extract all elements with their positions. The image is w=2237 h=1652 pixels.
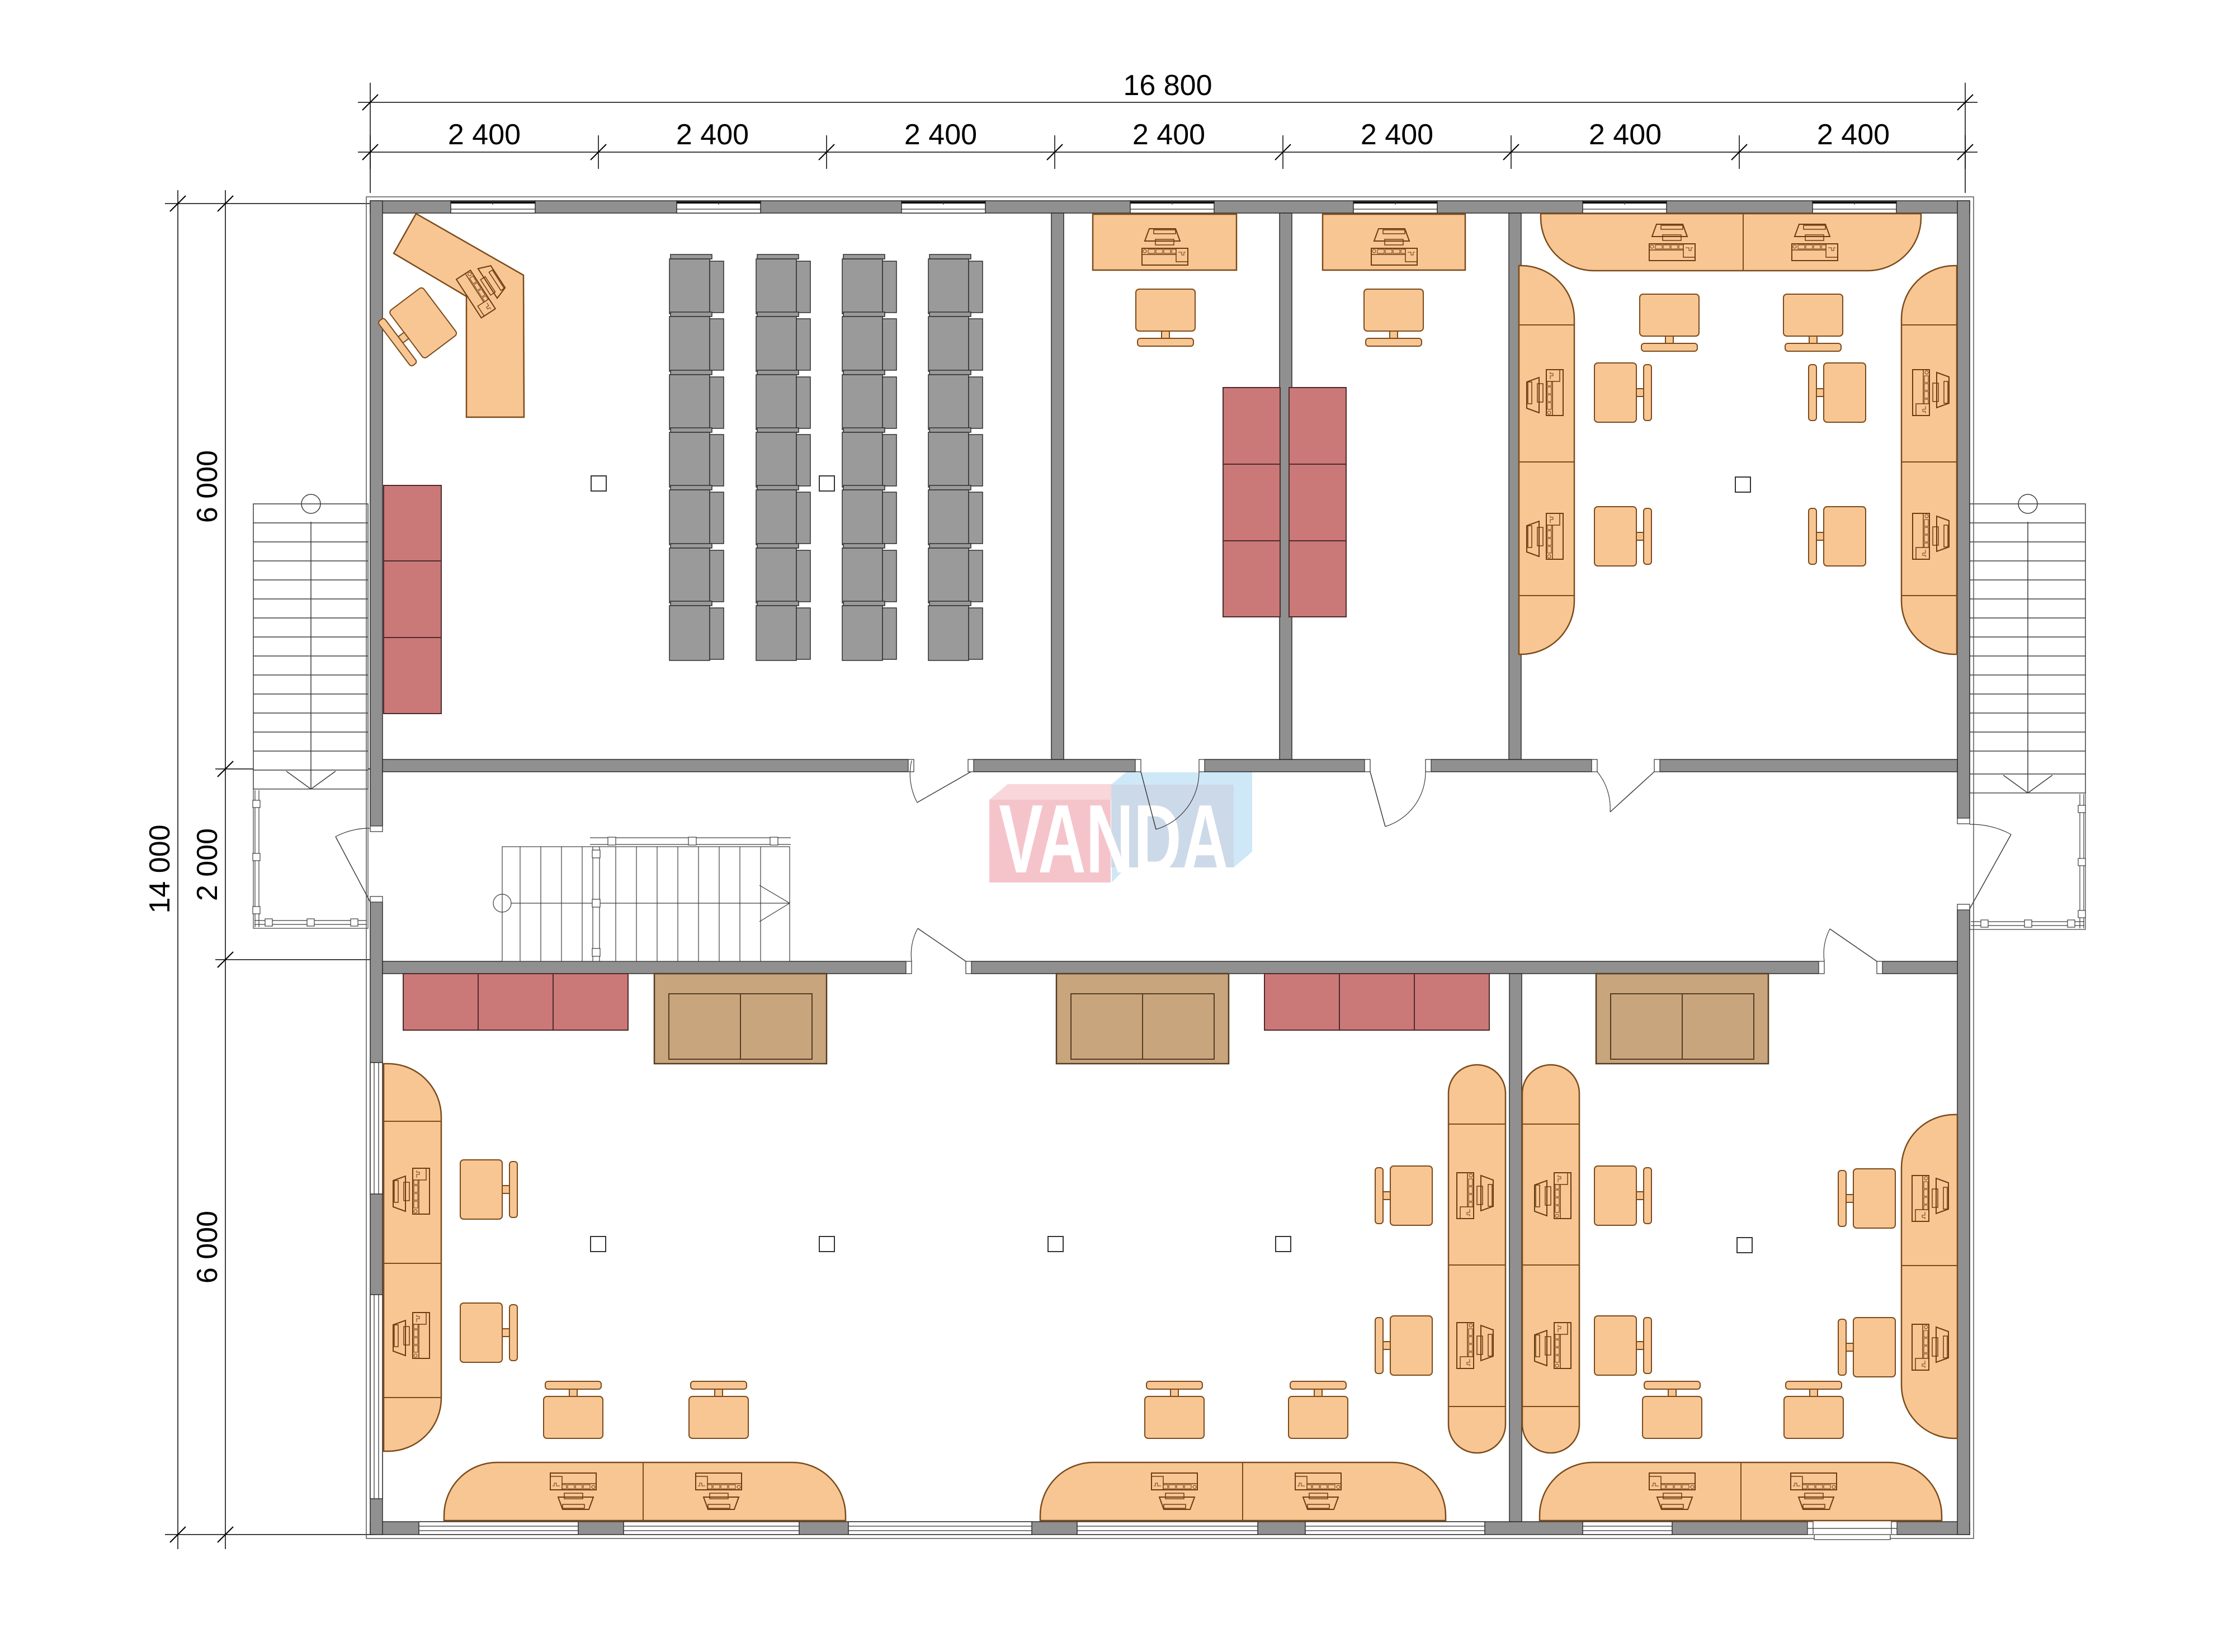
svg-text:2 400: 2 400 — [1817, 119, 1890, 151]
svg-text:2 400: 2 400 — [904, 119, 977, 151]
svg-text:16 800: 16 800 — [1123, 69, 1212, 102]
svg-text:2 400: 2 400 — [676, 119, 749, 151]
svg-text:14 000: 14 000 — [144, 824, 176, 913]
svg-text:2 400: 2 400 — [448, 119, 521, 151]
svg-text:2 400: 2 400 — [1132, 119, 1205, 151]
svg-text:2 400: 2 400 — [1361, 119, 1433, 151]
svg-text:2 400: 2 400 — [1589, 119, 1662, 151]
svg-text:2 000: 2 000 — [191, 828, 224, 901]
svg-text:6 000: 6 000 — [191, 1211, 224, 1283]
svg-text:VANDA: VANDA — [999, 784, 1229, 893]
svg-text:6 000: 6 000 — [191, 450, 224, 523]
